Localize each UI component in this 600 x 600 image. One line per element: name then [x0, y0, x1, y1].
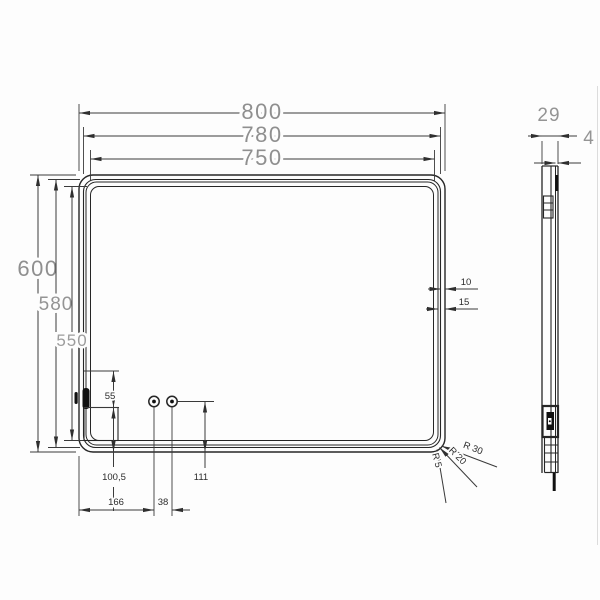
technical-drawing-page: 800 780 750 600 580 — [0, 0, 600, 600]
hole-2-center — [170, 400, 174, 404]
dim-label-580: 580 — [39, 294, 74, 315]
dim-label-166: 166 — [108, 497, 124, 508]
dim-label-55: 55 — [105, 391, 116, 402]
dim-edge-offset-10: 10 — [428, 277, 478, 289]
dim-label-111: 111 — [194, 472, 208, 483]
dim-hole-spacing-38: 38 — [158, 497, 190, 510]
hole-1-center — [152, 400, 156, 404]
dim-label-15: 15 — [459, 297, 470, 308]
mirror-outline — [79, 175, 445, 452]
dim-label-780: 780 — [241, 122, 282, 147]
dim-depth-29: 29 — [528, 105, 577, 164]
gasket-strip — [555, 175, 558, 191]
mirror-frame-line — [84, 180, 441, 448]
dim-height-580: 580 — [39, 180, 80, 448]
side-view: 29 4 — [528, 105, 595, 491]
dim-label-100-5: 100,5 — [102, 472, 126, 483]
dim-label-29: 29 — [537, 105, 560, 126]
sensor-cutout-detail — [84, 408, 118, 441]
dim-label-800: 800 — [241, 99, 282, 124]
sensor-body — [83, 388, 90, 409]
led-band-outer-line — [86, 182, 438, 445]
mirror-outer-edge — [79, 175, 445, 452]
dim-glass-4: 4 — [534, 128, 595, 163]
mirror-dimension-drawing: 800 780 750 600 580 — [0, 0, 600, 600]
mounting-holes — [149, 396, 214, 406]
dim-label-38: 38 — [158, 497, 169, 508]
radius-label-r5: R 5 — [429, 452, 443, 469]
dim-holes-111: 111 — [194, 402, 208, 484]
led-band-inner-line — [91, 187, 434, 441]
touch-sensor — [75, 388, 90, 409]
dim-label-750: 750 — [241, 145, 282, 170]
connector-pin — [549, 420, 551, 422]
front-view: 800 780 750 600 580 — [17, 99, 497, 516]
dim-sensor-offset-100-5: 100,5 — [102, 408, 126, 512]
dim-label-600: 600 — [17, 256, 58, 281]
sensor-tick-mark — [75, 392, 78, 404]
dim-label-4: 4 — [583, 128, 595, 149]
dim-label-10: 10 — [461, 277, 472, 288]
wall-bracket — [544, 196, 554, 218]
bracket-outline — [544, 196, 554, 218]
dim-label-550: 550 — [56, 331, 87, 350]
